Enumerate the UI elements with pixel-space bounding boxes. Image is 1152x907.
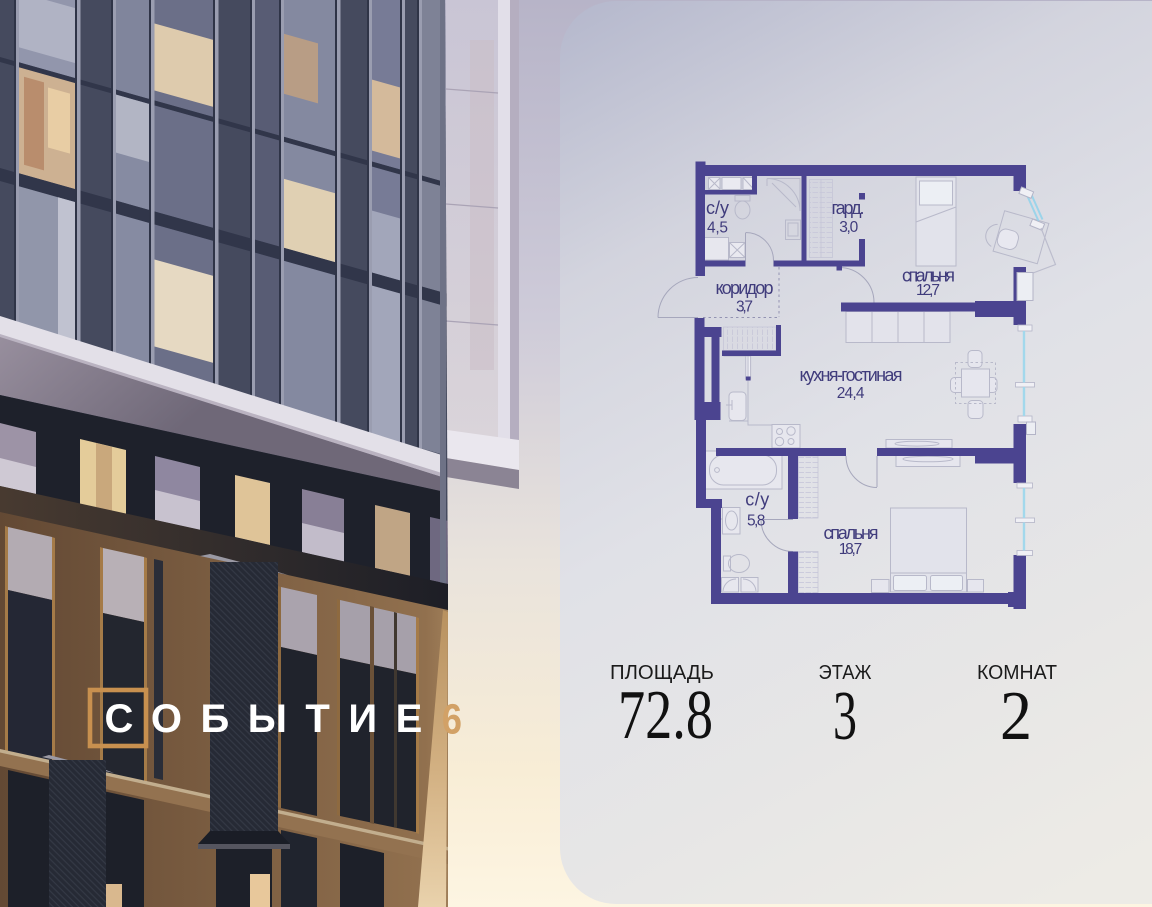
svg-text:2: 2	[1000, 678, 1032, 755]
svg-text:12,7: 12,7	[916, 282, 940, 299]
svg-text:с/у: с/у	[706, 198, 729, 218]
svg-text:24,4: 24,4	[837, 385, 865, 402]
svg-text:СОБЫТИЕ: СОБЫТИЕ	[105, 697, 441, 741]
svg-text:6: 6	[442, 696, 462, 744]
svg-text:18,7: 18,7	[839, 541, 863, 558]
svg-text:кухня-гостиная: кухня-гостиная	[800, 365, 903, 385]
svg-text:3,7: 3,7	[736, 299, 753, 316]
svg-text:72.8: 72.8	[618, 677, 713, 754]
svg-text:коридор: коридор	[716, 278, 774, 298]
svg-text:гард.: гард.	[832, 198, 865, 218]
svg-text:5,8: 5,8	[747, 513, 765, 530]
svg-text:с/у: с/у	[745, 490, 769, 510]
svg-text:4,5: 4,5	[707, 220, 728, 237]
svg-text:3: 3	[833, 678, 857, 755]
svg-text:спальня: спальня	[824, 523, 879, 543]
svg-text:3,0: 3,0	[839, 219, 858, 236]
